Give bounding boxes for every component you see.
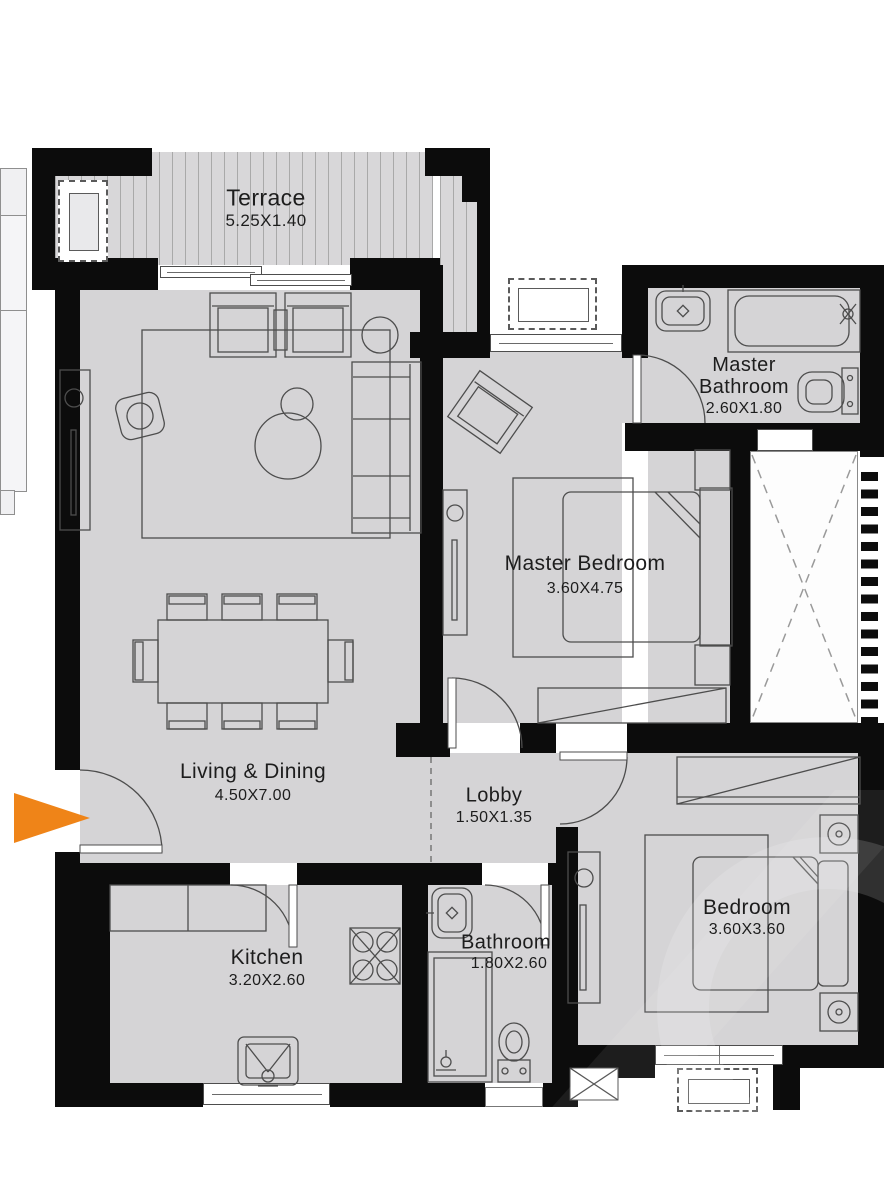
room-dims-kitchen: 3.20X2.60 xyxy=(229,972,306,990)
master-bath-door-gap xyxy=(622,358,648,423)
room-dims-master-bedroom: 3.60X4.75 xyxy=(547,580,624,598)
shaft-window xyxy=(757,429,813,451)
room-label-terrace: Terrace xyxy=(226,185,306,212)
wall xyxy=(425,148,490,176)
room-dims-bedroom: 3.60X3.60 xyxy=(709,921,786,939)
wall xyxy=(55,290,80,770)
bathroom-window-gap xyxy=(485,1087,543,1107)
wall xyxy=(800,1045,884,1068)
wall xyxy=(55,1083,203,1107)
wall xyxy=(625,423,884,451)
wall xyxy=(330,1083,428,1107)
exterior-gap xyxy=(800,1068,884,1110)
wall xyxy=(548,863,578,885)
wall xyxy=(297,863,402,885)
bathroom-floor xyxy=(428,885,552,1083)
wall xyxy=(556,827,578,863)
room-label-master-bedroom: Master Bedroom xyxy=(505,552,666,576)
adjacent-unit-room xyxy=(0,490,15,515)
wall xyxy=(110,863,230,885)
wall xyxy=(477,200,490,352)
wall xyxy=(428,863,482,885)
wall xyxy=(32,148,55,265)
room-dims-master-bathroom: 2.60X1.80 xyxy=(706,400,783,418)
wall xyxy=(428,1083,485,1107)
bedroom-window xyxy=(655,1045,783,1065)
room-label-living-dining: Living & Dining xyxy=(180,760,326,784)
room-label-kitchen: Kitchen xyxy=(231,946,304,970)
adjacent-unit-room xyxy=(0,168,27,217)
wall xyxy=(627,723,884,753)
master-corridor-floor xyxy=(443,352,622,723)
floor-plan: Terrace 5.25X1.40 Living & Dining 4.50X7… xyxy=(0,0,884,1200)
wall xyxy=(858,753,884,1068)
master-bedroom-floor xyxy=(648,447,730,723)
terrace-planter xyxy=(58,180,108,262)
wall xyxy=(520,723,556,753)
adjacent-unit-room xyxy=(0,215,27,312)
entrance-arrow-icon xyxy=(14,793,90,843)
adjacent-unit-room xyxy=(0,310,27,492)
wall xyxy=(32,258,158,290)
wall xyxy=(556,1045,655,1078)
wall xyxy=(396,723,450,757)
louvre-strip xyxy=(861,472,878,724)
room-label-master-bathroom: Master Bathroom xyxy=(674,354,814,398)
wall xyxy=(420,265,443,757)
room-dims-terrace: 5.25X1.40 xyxy=(225,211,306,231)
terrace-sliding-door xyxy=(160,266,262,278)
wall xyxy=(402,863,428,1083)
wall xyxy=(543,1083,578,1107)
terrace-sliding-door xyxy=(250,274,352,286)
wall xyxy=(55,852,80,1107)
lobby-floor xyxy=(433,753,556,863)
room-label-bedroom: Bedroom xyxy=(703,896,791,920)
kitchen-window xyxy=(203,1083,330,1105)
room-label-lobby: Lobby xyxy=(466,785,523,808)
wall xyxy=(462,176,490,202)
room-label-bathroom: Bathroom xyxy=(461,932,551,955)
room-dims-living-dining: 4.50X7.00 xyxy=(215,787,292,805)
master-window xyxy=(490,334,622,352)
bedroom-window-planter xyxy=(677,1068,758,1112)
room-dims-bathroom: 1.80X2.60 xyxy=(471,955,548,973)
master-window-planter xyxy=(508,278,597,330)
wall xyxy=(80,863,110,1107)
wall xyxy=(730,447,750,723)
room-dims-lobby: 1.50X1.35 xyxy=(456,809,533,827)
shaft xyxy=(750,451,858,723)
wall xyxy=(625,265,884,288)
